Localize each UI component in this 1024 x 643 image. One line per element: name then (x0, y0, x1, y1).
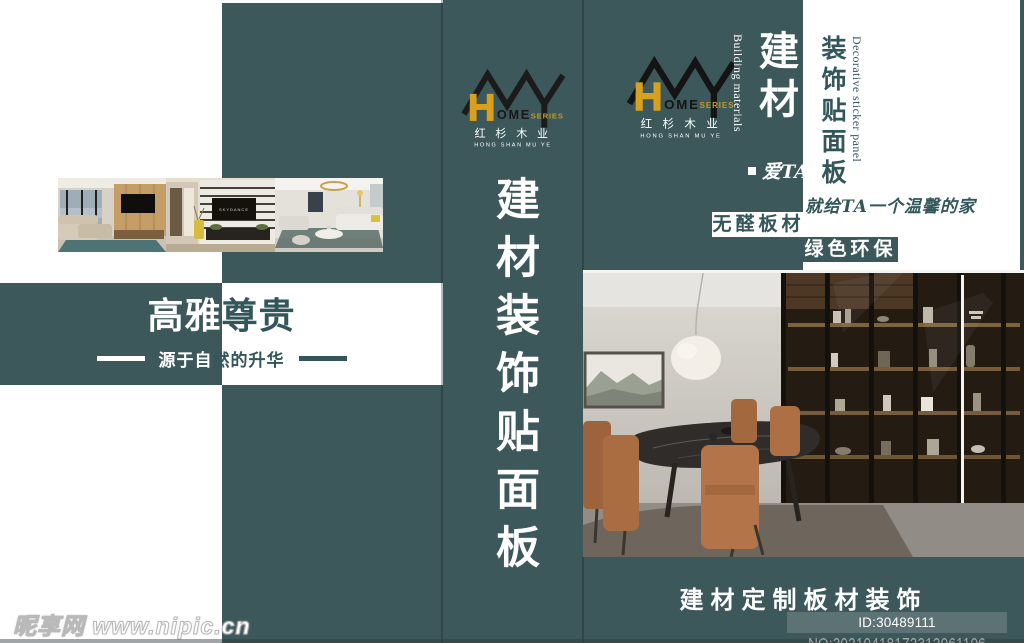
dash-left (97, 356, 145, 361)
subtitle-vertical-cn: 装饰贴面板 (813, 35, 849, 190)
bottom-caption: 建材定制板材装饰 (583, 580, 1024, 615)
love-ta-line: 爱TA (748, 157, 809, 184)
headline-on-teal: 高雅 (147, 295, 221, 336)
subline-text: 源于自然的升华 (159, 346, 285, 371)
interior-photo-strip-image: SKYDANCE (58, 178, 383, 252)
logo-ome-text: OME (497, 108, 531, 122)
image-id-badge: ID:30489111 NO:20210418172312061106 (787, 612, 1007, 633)
cover-right-edge (1020, 0, 1024, 275)
middle-vertical-title: 建材装饰贴面板 (443, 176, 583, 582)
square-bullet-icon (748, 167, 756, 175)
brochure-poster: SKYDANCE 高雅尊贵 (0, 0, 1024, 643)
logo-ome-text: OME (664, 97, 700, 112)
dining-room-photo-image (583, 273, 1024, 557)
brand-logo: OME SERIES 红 杉 木 业 HONG SHAN MU YE (458, 58, 568, 150)
fold-line-right-bottom (582, 557, 584, 643)
site-watermark: 昵享网 www.nipic.cn (13, 607, 293, 641)
slogan-text: 就给TA一个温馨的家 (805, 192, 995, 217)
left-subline: 源于自然的升华 (0, 346, 443, 371)
title-jiancai-vertical: 建材 (751, 30, 799, 126)
love-ta-text: 爱TA (762, 157, 809, 184)
logo-series-text: SERIES (531, 111, 564, 120)
left-headline: 高雅尊贵 (0, 296, 443, 336)
dash-right (299, 356, 347, 361)
brand-name-cn: 红 杉 木 业 (475, 126, 552, 140)
brand-name-cn: 红 杉 木 业 (641, 117, 722, 131)
building-materials-vertical-en: Building materials (730, 34, 745, 204)
headline-on-white: 尊贵 (222, 295, 296, 336)
bottom-edge-shadow (0, 639, 1024, 643)
brand-logo: OME SERIES 红 杉 木 业 HONG SHAN MU YE (618, 45, 744, 141)
fold-line-left (441, 0, 443, 643)
subtitle-vertical-en: Decorative sticker panel (849, 36, 864, 191)
badge-green: 绿色环保 (803, 237, 898, 262)
interior-photo-strip: SKYDANCE (58, 178, 383, 252)
dining-room-photo (583, 270, 1024, 557)
middle-fold-panel: OME SERIES 红 杉 木 业 HONG SHAN MU YE 建材装饰贴… (443, 0, 583, 643)
tv-brand-text: SKYDANCE (219, 207, 249, 212)
right-cover-panel: OME SERIES 红 杉 木 业 HONG SHAN MU YE Build… (583, 0, 1024, 643)
left-bottom-teal-block (222, 385, 443, 643)
brand-name-en: HONG SHAN MU YE (640, 133, 721, 139)
fold-line-right-top (582, 0, 584, 270)
badge-formaldehyde-free: 无醛板材 (712, 212, 805, 237)
brand-name-en: HONG SHAN MU YE (474, 142, 552, 148)
